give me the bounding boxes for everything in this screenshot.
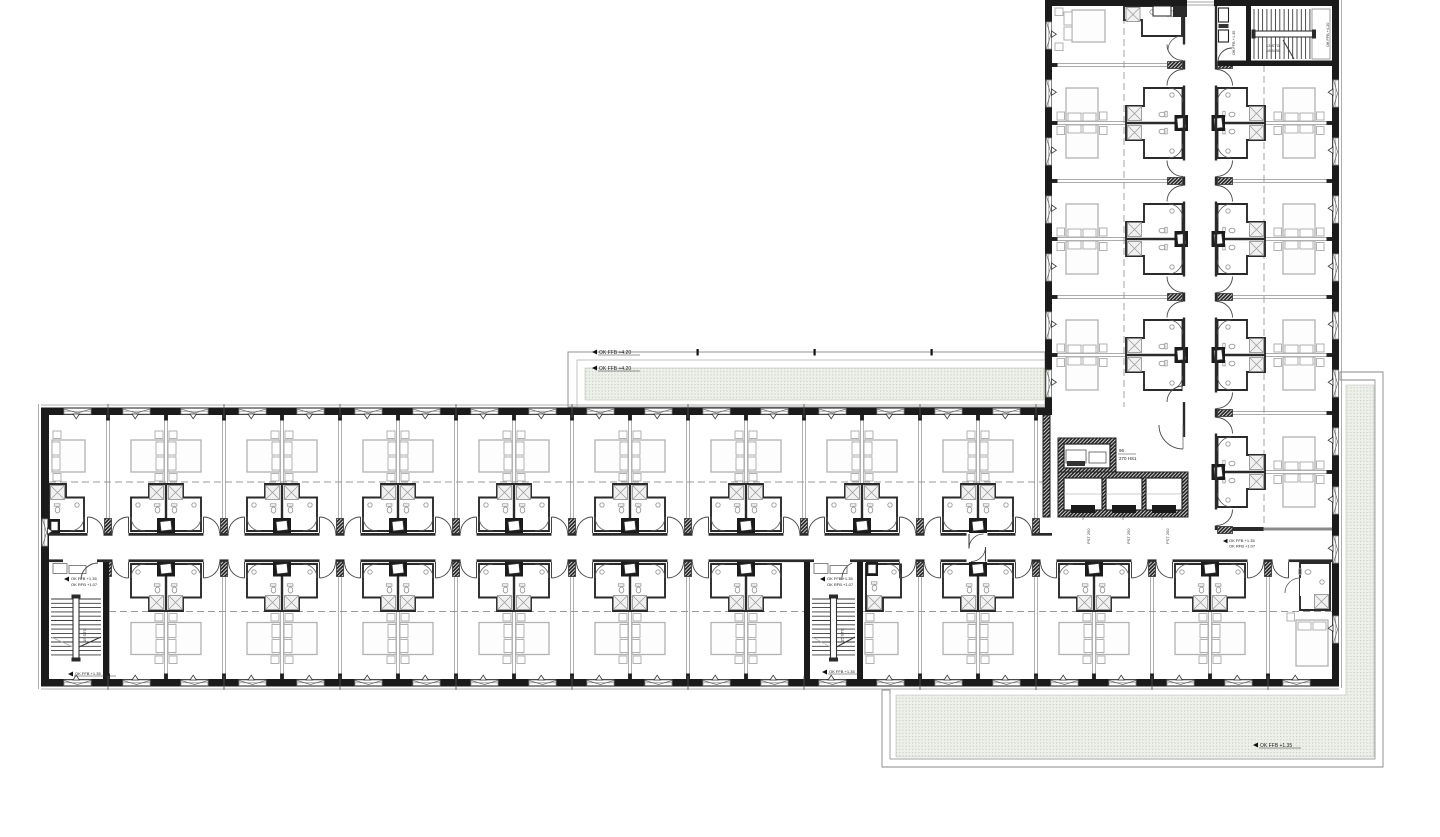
svg-text:270 HS1: 270 HS1 [1119, 456, 1137, 461]
svg-text:OK FFB +1.35: OK FFB +1.35 [829, 669, 855, 674]
svg-text:OK RFB +1.07: OK RFB +1.07 [827, 582, 854, 587]
svg-text:OK FFB +1.35: OK FFB +1.35 [827, 576, 853, 581]
svg-text:OK FFB +1.35: OK FFB +1.35 [71, 576, 97, 581]
svg-text:OK RFB +1.07: OK RFB +1.07 [71, 582, 98, 587]
svg-text:OK FFB +1.35: OK FFB +1.35 [1232, 31, 1236, 55]
svg-text:OK FFB +4.20: OK FFB +4.20 [1326, 23, 1330, 47]
svg-text:OK FFB +1.35: OK FFB +1.35 [75, 671, 101, 676]
svg-text:15 STG: 15 STG [840, 628, 845, 642]
svg-text:PST 250: PST 250 [1086, 528, 1091, 544]
svg-text:PST 250: PST 250 [1126, 528, 1131, 544]
svg-text:15 STG: 15 STG [82, 628, 87, 642]
svg-text:96: 96 [1119, 448, 1125, 453]
svg-text:18.5/28: 18.5/28 [1266, 48, 1280, 53]
svg-text:PST 250: PST 250 [1165, 528, 1170, 544]
svg-text:OK FFB +1.35: OK FFB +1.35 [1229, 538, 1255, 543]
svg-text:OK RFB +1.07: OK RFB +1.07 [1229, 544, 1256, 549]
